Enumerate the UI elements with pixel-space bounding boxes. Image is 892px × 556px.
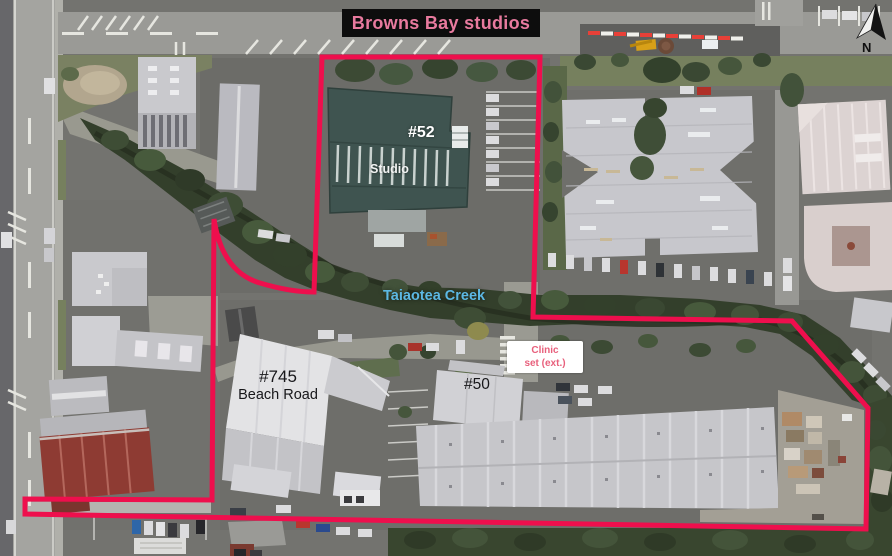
creek-label: Taiaotea Creek	[383, 288, 485, 304]
office-complex	[562, 96, 758, 258]
studio-name-label: Studio	[370, 162, 409, 176]
studio-number-label: #52	[408, 124, 435, 142]
map-stage: Browns Bay studios #52 Studio Taiaotea C…	[0, 0, 892, 556]
building-745-label: #745 Beach Road	[218, 367, 338, 405]
aerial-photo	[0, 0, 892, 556]
building-50-label: #50	[464, 376, 490, 394]
clinic-set-label: Clinic set (ext.)	[507, 341, 583, 373]
north-label: N	[862, 40, 871, 55]
north-arrow-icon	[848, 2, 888, 42]
